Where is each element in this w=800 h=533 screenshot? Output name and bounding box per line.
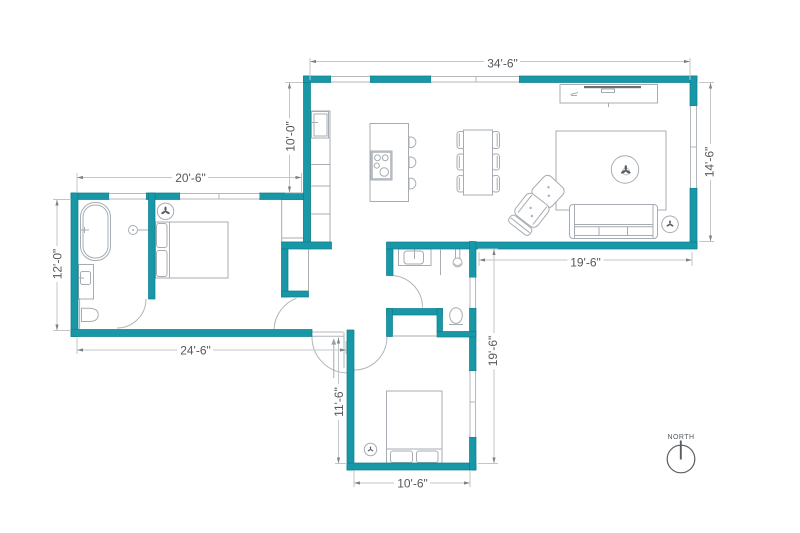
svg-text:19'-6": 19'-6": [486, 336, 500, 367]
svg-text:34'-6": 34'-6": [487, 56, 518, 70]
svg-text:20'-6": 20'-6": [175, 171, 206, 185]
svg-text:12'-0": 12'-0": [50, 249, 64, 280]
svg-text:19'-6": 19'-6": [570, 255, 601, 269]
svg-text:24'-6": 24'-6": [180, 343, 211, 357]
svg-text:14'-6": 14'-6": [702, 147, 716, 178]
svg-text:10'-0": 10'-0": [283, 121, 297, 152]
svg-text:11'-6": 11'-6": [332, 387, 346, 417]
svg-text:10'-6": 10'-6": [397, 476, 428, 490]
svg-text:NORTH: NORTH: [667, 434, 694, 441]
